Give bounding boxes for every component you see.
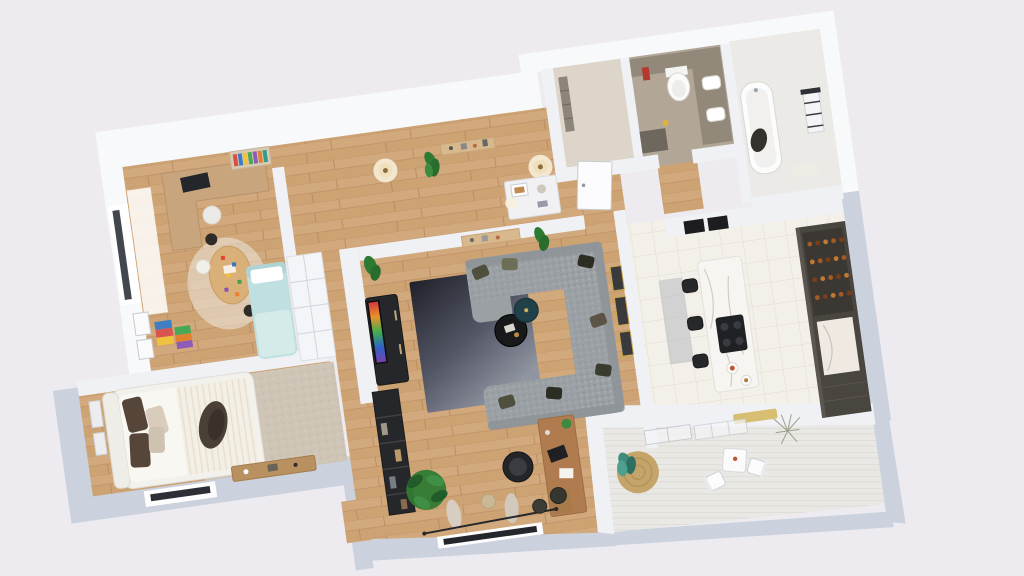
sideboard xyxy=(502,175,561,220)
floorplan-render xyxy=(0,0,1024,576)
pillow xyxy=(129,433,151,468)
sink xyxy=(706,107,726,122)
bar-stool xyxy=(682,278,699,293)
gallery-frame xyxy=(133,312,151,336)
bar-stool xyxy=(692,353,709,368)
pillow xyxy=(148,427,165,454)
cooktop xyxy=(715,314,748,354)
floorplan-viewport xyxy=(0,0,1024,576)
bed-blanket xyxy=(254,309,296,358)
wall-frame xyxy=(707,215,729,231)
poster-colorful xyxy=(174,325,193,349)
sink xyxy=(702,75,722,90)
wall-frame xyxy=(683,219,705,235)
gallery-frame xyxy=(137,339,154,360)
bar-stool xyxy=(687,316,704,331)
wall-frame xyxy=(93,432,107,455)
bath-cabinet xyxy=(640,128,669,153)
poster-colorful xyxy=(154,320,174,346)
bistro-table xyxy=(722,448,747,473)
front-door xyxy=(577,161,612,210)
papers xyxy=(559,468,573,478)
